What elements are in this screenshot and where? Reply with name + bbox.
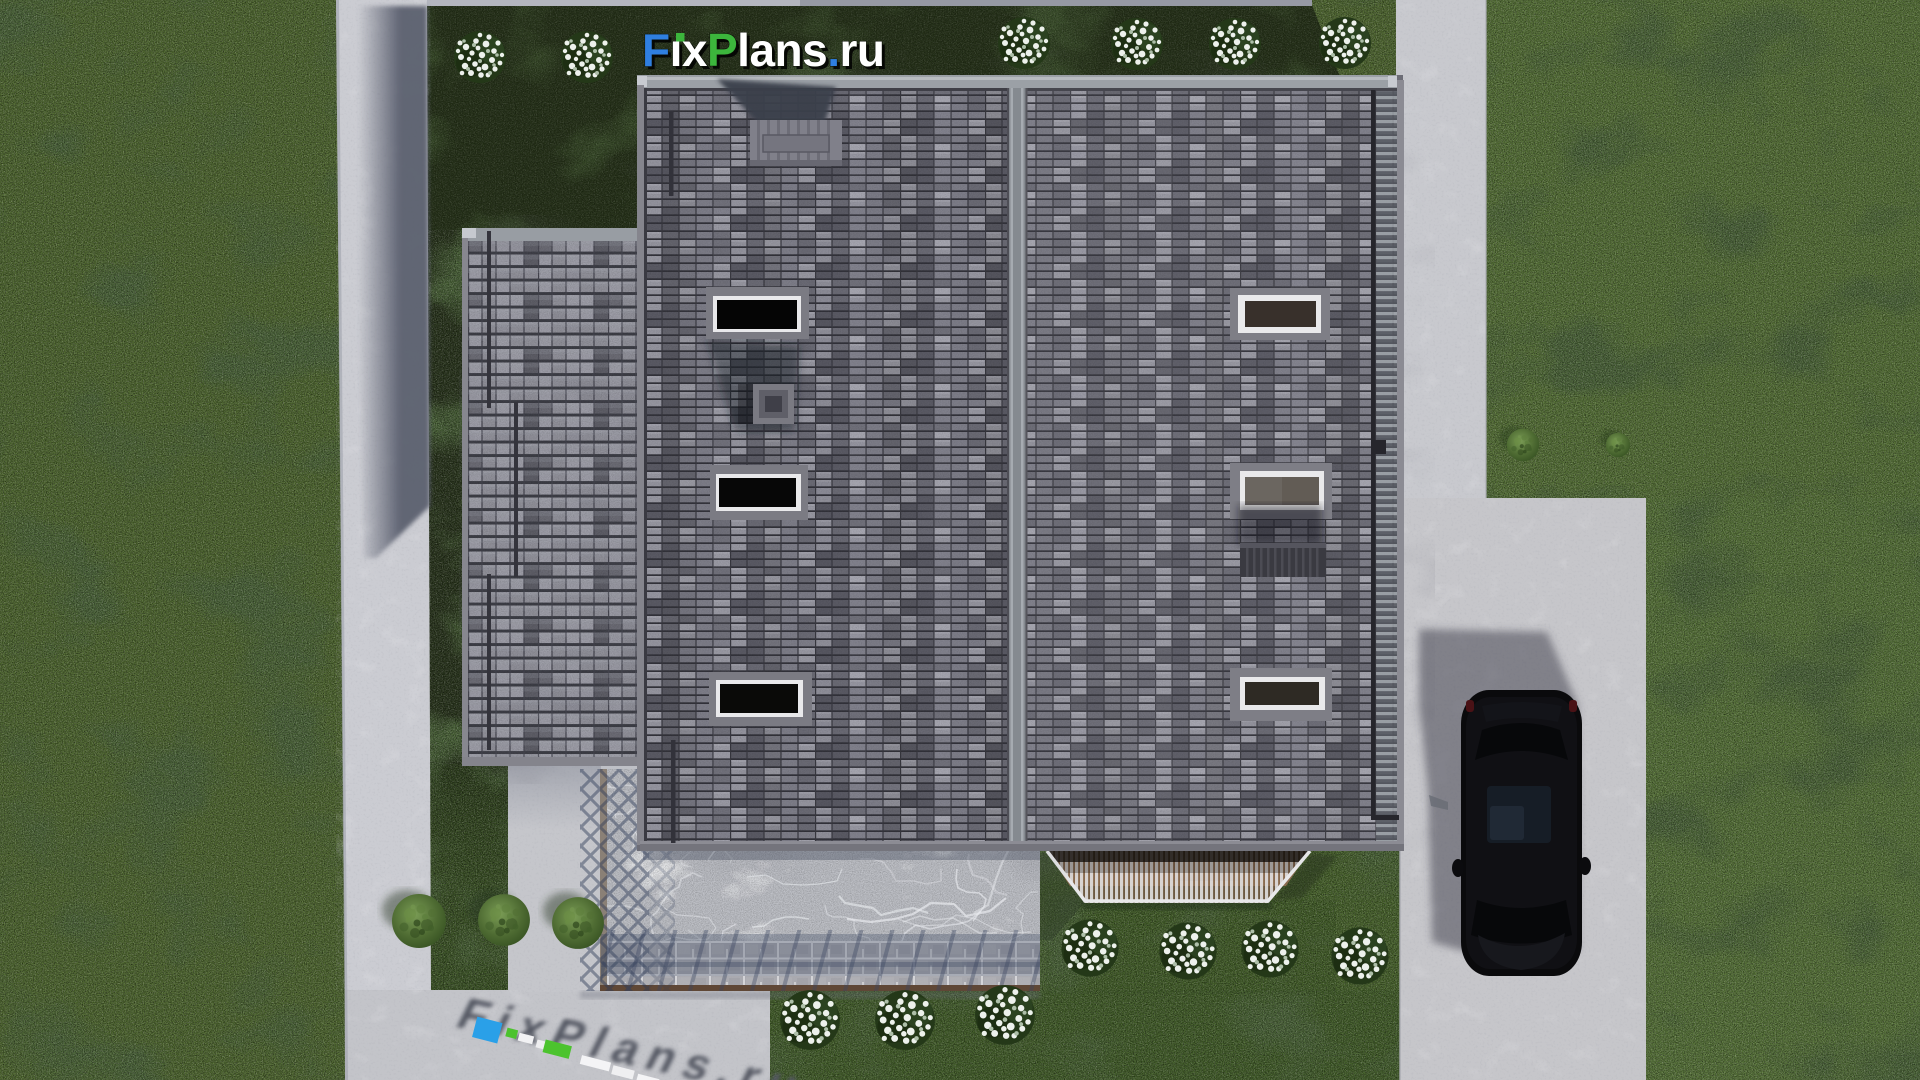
- svg-text:FıxPlans.ru: FıxPlans.ru: [642, 24, 885, 76]
